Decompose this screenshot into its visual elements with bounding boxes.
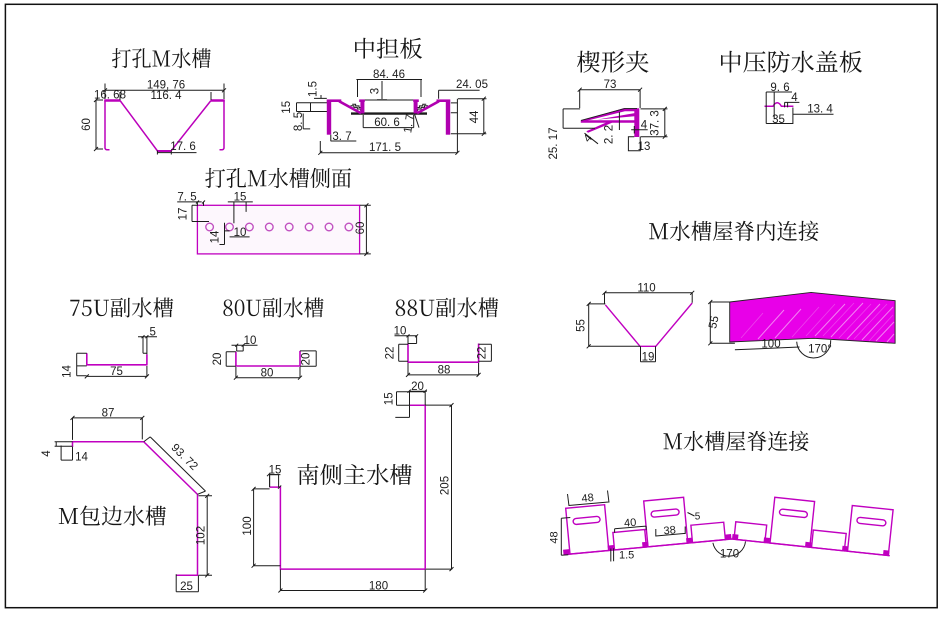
svg-text:38: 38 bbox=[663, 524, 676, 537]
svg-text:10: 10 bbox=[394, 326, 407, 338]
svg-text:2. 2: 2. 2 bbox=[604, 125, 616, 144]
svg-text:60: 60 bbox=[81, 118, 93, 131]
svg-text:75: 75 bbox=[110, 366, 123, 378]
svg-text:24. 05: 24. 05 bbox=[456, 79, 488, 91]
svg-text:22: 22 bbox=[385, 347, 397, 360]
svg-text:25: 25 bbox=[180, 581, 193, 593]
svg-text:4: 4 bbox=[791, 92, 798, 104]
svg-text:22: 22 bbox=[476, 347, 488, 360]
svg-text:20: 20 bbox=[411, 381, 424, 393]
svg-text:17. 6: 17. 6 bbox=[170, 141, 196, 153]
svg-text:19: 19 bbox=[642, 351, 655, 363]
svg-text:13: 13 bbox=[638, 141, 651, 153]
svg-text:171. 5: 171. 5 bbox=[369, 142, 401, 154]
svg-text:15: 15 bbox=[383, 392, 395, 405]
svg-text:80: 80 bbox=[261, 367, 274, 379]
svg-text:14: 14 bbox=[210, 230, 222, 243]
svg-text:35: 35 bbox=[772, 114, 785, 126]
svg-text:87: 87 bbox=[102, 407, 115, 419]
svg-text:100: 100 bbox=[242, 516, 254, 535]
svg-text:5: 5 bbox=[695, 512, 701, 523]
svg-text:116. 4: 116. 4 bbox=[150, 90, 182, 102]
svg-text:170: 170 bbox=[720, 549, 739, 561]
svg-text:10: 10 bbox=[234, 227, 247, 239]
svg-text:4: 4 bbox=[641, 119, 648, 131]
svg-text:40: 40 bbox=[624, 517, 637, 530]
svg-text:4: 4 bbox=[41, 450, 53, 457]
svg-text:180: 180 bbox=[369, 580, 388, 592]
svg-text:48: 48 bbox=[581, 492, 594, 505]
svg-text:102: 102 bbox=[195, 526, 207, 545]
svg-text:48: 48 bbox=[548, 531, 560, 543]
svg-text:25. 17: 25. 17 bbox=[548, 128, 560, 160]
svg-text:5: 5 bbox=[149, 327, 155, 339]
svg-text:170°: 170° bbox=[808, 344, 832, 356]
svg-text:60: 60 bbox=[355, 222, 367, 235]
svg-text:73: 73 bbox=[604, 79, 617, 91]
svg-text:20: 20 bbox=[212, 353, 224, 366]
svg-text:15: 15 bbox=[269, 465, 282, 477]
svg-text:14: 14 bbox=[75, 452, 88, 464]
svg-text:17: 17 bbox=[177, 208, 189, 221]
svg-text:88: 88 bbox=[438, 365, 451, 377]
svg-text:14: 14 bbox=[61, 365, 73, 378]
svg-text:110: 110 bbox=[637, 283, 655, 295]
svg-text:37. 3: 37. 3 bbox=[649, 110, 661, 136]
svg-text:84. 46: 84. 46 bbox=[373, 69, 405, 81]
svg-text:1.5: 1.5 bbox=[619, 550, 634, 562]
svg-text:100: 100 bbox=[761, 339, 780, 351]
svg-text:8. 5: 8. 5 bbox=[293, 112, 305, 131]
svg-text:15: 15 bbox=[281, 101, 293, 114]
svg-text:60. 6: 60. 6 bbox=[374, 117, 400, 129]
svg-text:7. 5: 7. 5 bbox=[177, 192, 196, 204]
svg-text:3: 3 bbox=[370, 88, 382, 94]
svg-text:20: 20 bbox=[301, 353, 313, 366]
svg-text:15: 15 bbox=[234, 192, 247, 204]
svg-text:3. 7: 3. 7 bbox=[332, 131, 351, 143]
svg-text:44: 44 bbox=[469, 110, 481, 123]
svg-text:13. 4: 13. 4 bbox=[807, 103, 833, 115]
svg-text:10: 10 bbox=[244, 335, 257, 347]
svg-text:55: 55 bbox=[576, 319, 588, 332]
svg-text:9. 6: 9. 6 bbox=[770, 82, 789, 94]
svg-text:205: 205 bbox=[439, 476, 451, 495]
svg-text:1.5: 1.5 bbox=[308, 81, 320, 97]
